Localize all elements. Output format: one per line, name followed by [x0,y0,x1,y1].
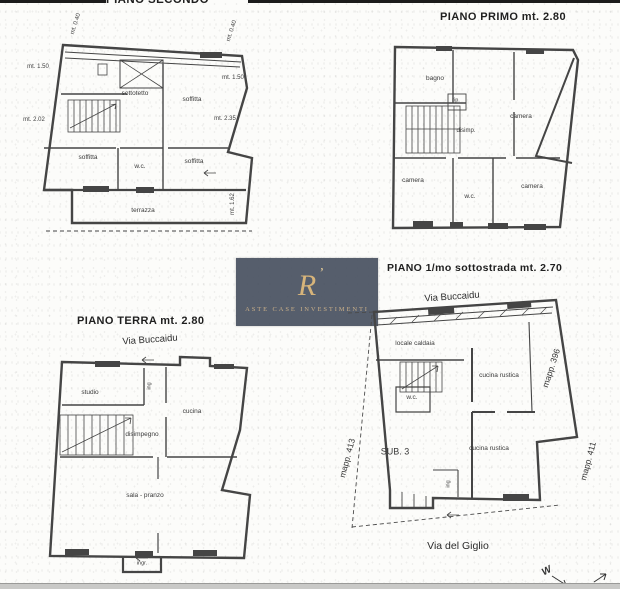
measure-mt-150-left: mt. 1.50 [27,64,49,70]
plan-terra-drawing [38,305,273,580]
primo-stairs [406,106,460,153]
room-label-studio: studio [81,390,98,397]
room-label-camera-tr: camera [510,114,532,121]
watermark-monogram: R [298,269,316,302]
room-label-cucina: cucina [183,409,202,416]
watermark-logo-icon: R’ [298,271,316,301]
room-label-cucina-rustica-bottom: cucina rustica [469,446,509,453]
room-label-cucina-rustica-top: cucina rustica [479,373,519,380]
room-label-camera-bl: camera [402,178,424,185]
scan-bottom-edge [0,583,620,589]
sottostrada-street-bottom-label: Via del Giglio [427,540,489,552]
door-arrow-icon [204,170,216,176]
plan-sottostrada-title: PIANO 1/mo sottostrada mt. 2.70 [387,262,562,274]
scanned-floorplan-sheet: PIANO SECONDO soffitta sottotett [0,0,620,589]
room-label-wc-primo: w.c. [464,194,475,201]
room-label-sala-pranzo: sala - pranzo [126,493,164,500]
room-label-wc-secondo: w.c. [134,164,145,171]
room-label-disimpegno: disimpegno [125,432,158,439]
room-label-wc-sottostrada: w.c. [406,395,417,402]
sub-label: SUB. 3 [381,448,410,457]
scan-top-edge-right [248,0,620,3]
room-label-locale-caldaia: locale caldaia [395,341,434,348]
measure-mt-150-right: mt. 1.50 [222,75,244,81]
room-label-soffitta-tr: soffitta [182,97,201,104]
entrance-arrow-icon [142,357,154,363]
terra-stairs [60,415,133,455]
measure-mt-162-right: mt. 1.62 [230,193,236,215]
room-label-sottotetto: sottotetto [122,91,149,98]
measure-mt-202-left: mt. 2.02 [23,117,45,123]
room-label-rip: rip. [452,98,460,104]
plan-primo-drawing [388,8,588,233]
measure-mt-235-right: mt. 2.35 [214,116,236,122]
room-label-ing-sottostrada: ing [446,480,452,487]
basement-entrance-arrow-icon [447,512,459,518]
room-label-terrazza: terrazza [131,208,154,215]
secondo-stairs [68,100,120,132]
room-label-ingr: ingr. [137,561,147,567]
room-label-ing-terra: ing [147,382,153,389]
room-label-camera-br: camera [521,184,543,191]
room-label-bagno: bagno [426,76,444,83]
watermark-leaf-icon: ’ [319,267,324,281]
room-label-soffitta-bl: soffitta [78,155,97,162]
room-label-soffitta-br: soffitta [184,159,203,166]
room-label-disimp: disimp. [456,128,475,134]
